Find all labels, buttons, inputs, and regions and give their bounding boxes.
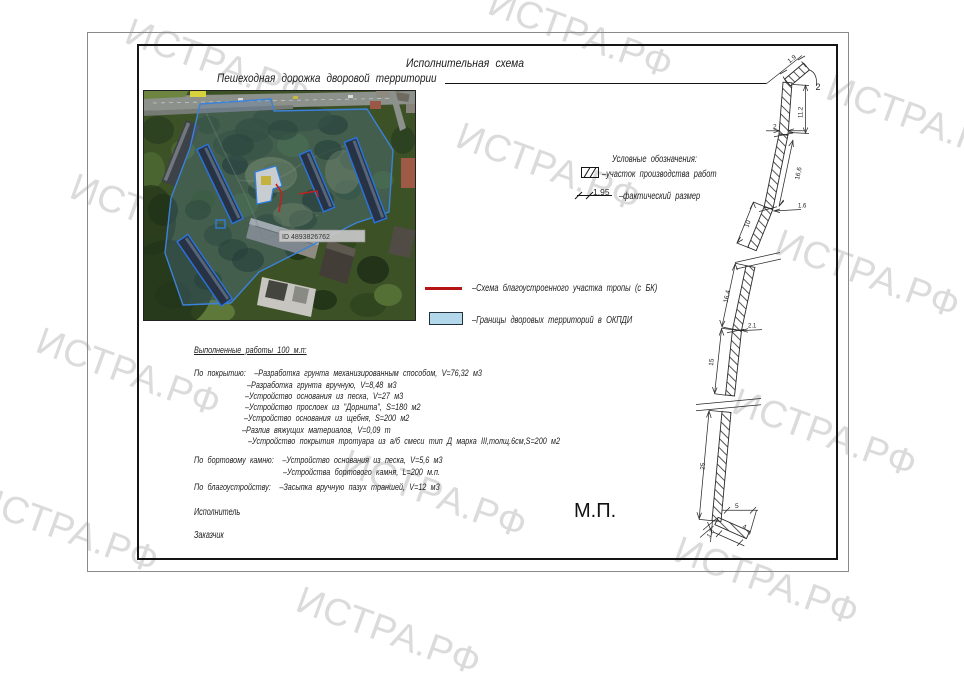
svg-text:1.9: 1.9	[786, 54, 798, 65]
svg-text:16,6: 16,6	[794, 166, 804, 180]
svg-text:2: 2	[773, 124, 777, 131]
svg-text:10: 10	[743, 219, 752, 229]
svg-text:1.3: 1.3	[706, 528, 716, 539]
svg-text:ID 4893826762: ID 4893826762	[282, 234, 330, 241]
svg-text:2: 2	[816, 82, 821, 92]
svg-text:5: 5	[735, 503, 739, 510]
svg-text:16,4: 16,4	[723, 289, 733, 303]
svg-text:11.2: 11.2	[799, 106, 805, 118]
svg-text:2.1: 2.1	[748, 324, 757, 330]
svg-text:25: 25	[700, 462, 708, 470]
svg-text:1.6: 1.6	[798, 204, 807, 210]
svg-text:15: 15	[708, 358, 716, 366]
